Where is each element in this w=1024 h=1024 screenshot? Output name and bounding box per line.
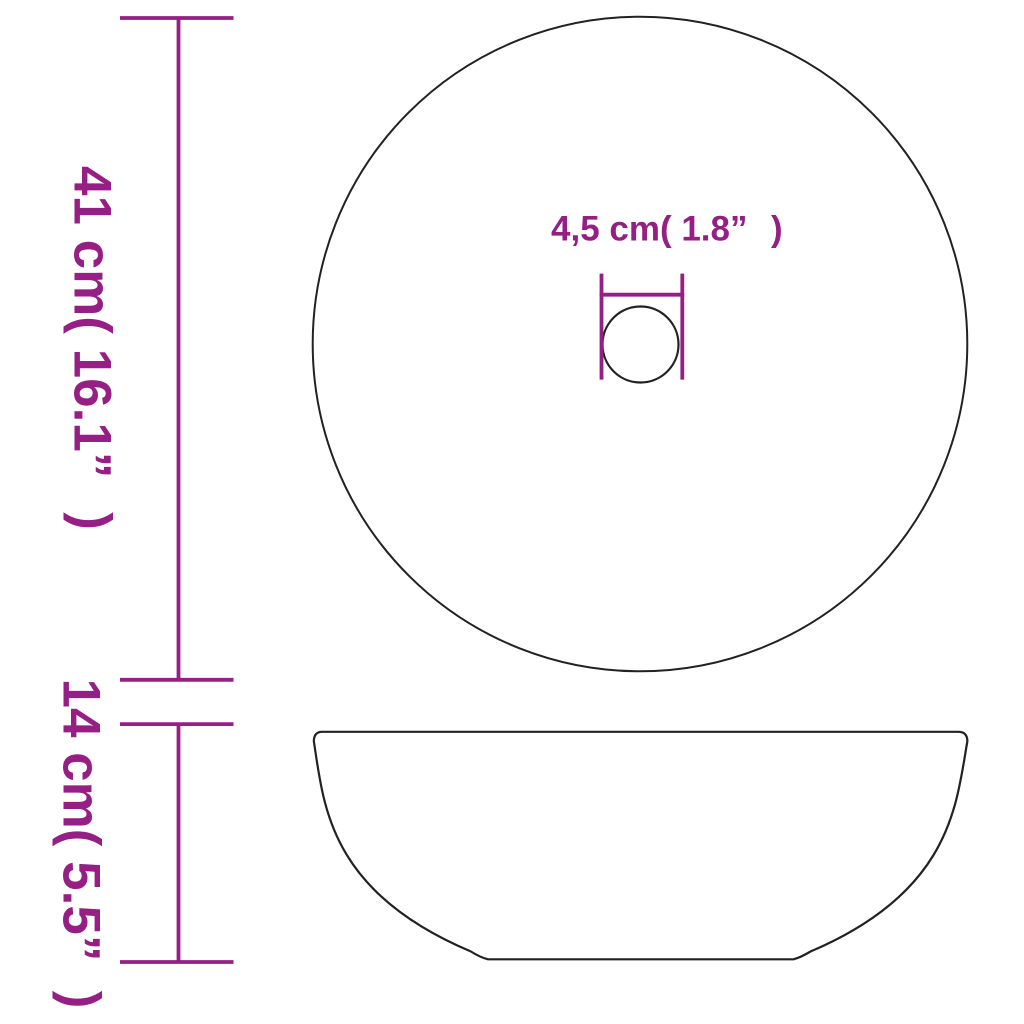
svg-text:41 cm( 16.1” ): 41 cm( 16.1” ) (63, 166, 122, 530)
svg-text:4,5 cm( 1.8” ): 4,5 cm( 1.8” ) (551, 210, 783, 249)
svg-text:14 cm( 5.5” ): 14 cm( 5.5” ) (51, 679, 110, 1009)
